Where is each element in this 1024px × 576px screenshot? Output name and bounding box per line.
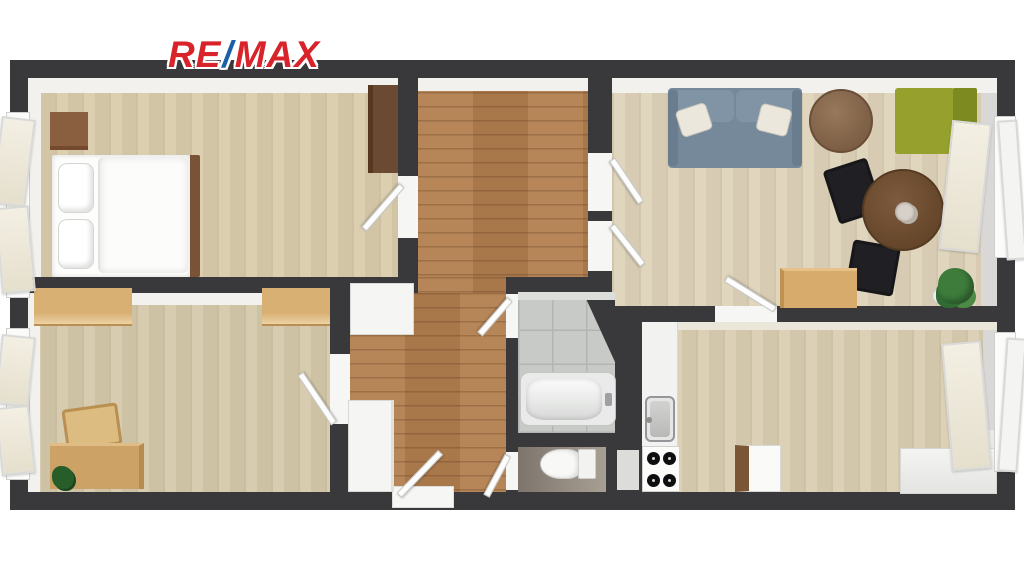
sink-faucet xyxy=(646,417,652,423)
sink-basin xyxy=(650,401,670,437)
sofa xyxy=(668,88,802,168)
wall-face xyxy=(518,292,615,300)
toilet-tank xyxy=(578,449,596,479)
coffee-table xyxy=(809,89,873,153)
bathtub xyxy=(520,372,616,426)
toilet-bowl xyxy=(540,449,582,479)
hall-closet-upper xyxy=(350,283,414,335)
armchair-green xyxy=(895,88,955,154)
kitchen-sink xyxy=(645,396,675,442)
double-bed xyxy=(52,155,200,277)
stove-burner xyxy=(663,452,676,465)
wall-face xyxy=(642,322,997,330)
logo-max: MAX xyxy=(235,34,320,75)
nightstand xyxy=(50,112,88,150)
desk-plant xyxy=(52,466,74,489)
bathtub-faucet xyxy=(605,393,612,406)
pillow xyxy=(58,219,94,269)
stove-burner xyxy=(647,474,660,487)
threshold-study xyxy=(330,354,350,424)
sofa-armrest xyxy=(668,90,678,166)
kitchen-stove xyxy=(642,446,680,492)
utility-niche xyxy=(617,450,639,490)
dining-table xyxy=(862,169,944,251)
kitchen-cabinet-box xyxy=(735,445,781,492)
duvet xyxy=(98,157,188,273)
pillow xyxy=(58,163,94,213)
floor-plan-screenshot: RE/MAX xyxy=(0,0,1024,576)
wall-face xyxy=(418,78,588,91)
stove-burner xyxy=(663,474,676,487)
wardrobe xyxy=(368,85,398,173)
stove-burner xyxy=(647,452,660,465)
living-desk xyxy=(780,268,857,308)
logo-slash-icon: / xyxy=(221,34,234,75)
hall-closet-lower xyxy=(348,400,394,492)
threshold-living-2 xyxy=(588,221,612,271)
room-hallway-join xyxy=(418,277,506,293)
remax-logo: RE/MAX xyxy=(168,34,320,76)
bathtub-basin xyxy=(526,378,602,420)
potted-plant xyxy=(930,266,976,310)
plant-foliage xyxy=(938,268,974,304)
logo-re: RE xyxy=(168,34,221,75)
table-centerpiece xyxy=(895,202,915,222)
room-hallway-upper xyxy=(418,78,588,277)
wall-cabinet-left xyxy=(34,288,132,326)
wall-cabinet-right xyxy=(262,288,330,326)
sofa-armrest xyxy=(792,90,802,166)
wall-face xyxy=(28,78,398,93)
